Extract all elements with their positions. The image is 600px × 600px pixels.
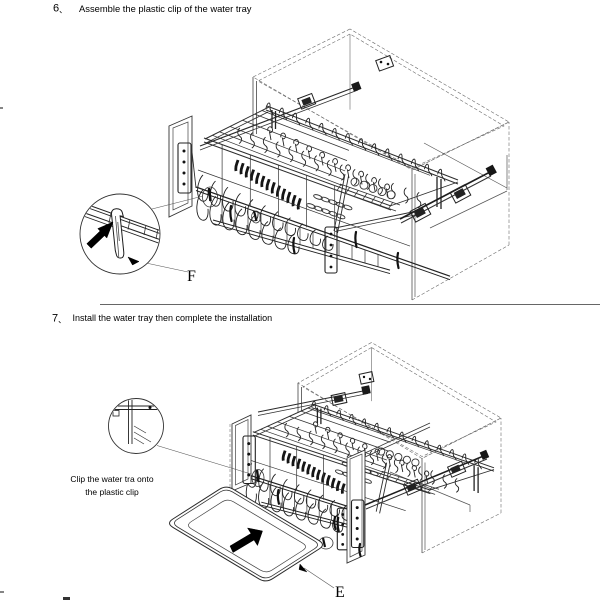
svg-text:Install the water tray then co: Install the water tray then complete the… xyxy=(73,313,273,323)
svg-text:Clip the water tra onto: Clip the water tra onto xyxy=(70,474,153,484)
svg-text:E: E xyxy=(335,584,345,600)
svg-text:the plastic clip: the plastic clip xyxy=(85,487,139,497)
svg-text:Assemble the plastic clip of t: Assemble the plastic clip of the water t… xyxy=(79,3,252,14)
svg-text:F: F xyxy=(187,268,196,285)
